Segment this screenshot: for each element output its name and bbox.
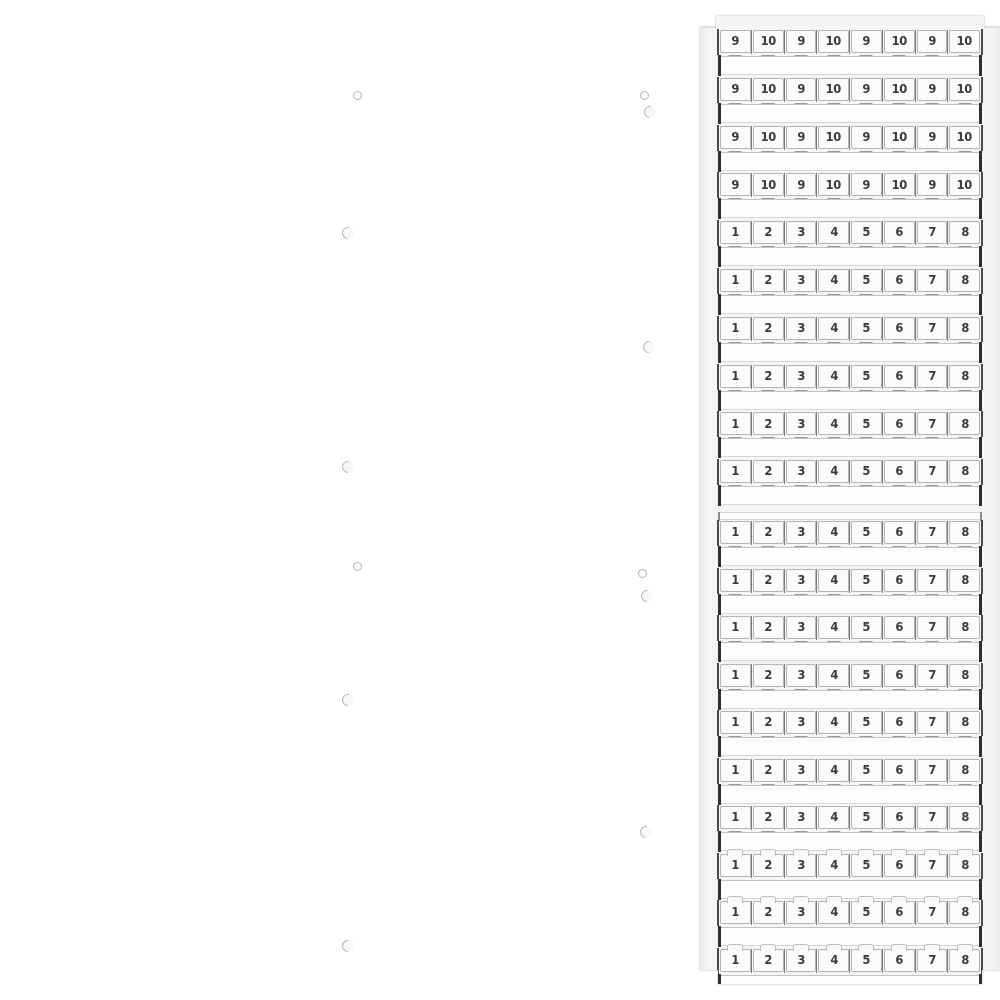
marker-tag: 1 <box>720 854 751 877</box>
marker-number: 2 <box>764 669 772 682</box>
marker-number: 2 <box>764 574 772 587</box>
marker-number: 5 <box>863 764 871 777</box>
marker-tag: 1 <box>720 412 751 435</box>
marker-tag: 8 <box>949 221 980 244</box>
marker-tag-strip: 12345678 <box>720 365 980 388</box>
marker-number: 7 <box>928 906 936 919</box>
marker-row: 910910910910 <box>700 173 1000 217</box>
marker-tag: 4 <box>818 854 849 877</box>
marker-number: 7 <box>928 669 936 682</box>
marker-tag-strip: 12345678 <box>720 759 980 782</box>
mount-hole <box>353 562 362 571</box>
marker-number: 4 <box>830 859 838 872</box>
marker-tag: 3 <box>786 412 817 435</box>
tag-notch <box>727 944 743 951</box>
marker-number: 9 <box>863 83 871 96</box>
mount-hole <box>640 91 649 100</box>
marker-number: 3 <box>797 906 805 919</box>
marker-number: 9 <box>732 35 740 48</box>
tag-notch <box>924 944 940 951</box>
marker-tag: 9 <box>851 78 882 101</box>
tag-notch <box>924 896 940 903</box>
marker-tag: 6 <box>884 269 915 292</box>
marker-tag: 7 <box>917 616 948 639</box>
marker-tag: 1 <box>720 317 751 340</box>
marker-tag-strip: 910910910910 <box>720 30 980 53</box>
marker-tag: 2 <box>753 664 784 687</box>
marker-number: 1 <box>732 574 740 587</box>
card-top-shoulder-left <box>700 27 716 28</box>
marker-tag-strip: 12345678 <box>720 711 980 734</box>
marker-tag: 7 <box>917 854 948 877</box>
marker-tag: 4 <box>818 317 849 340</box>
marker-tag-strip: 12345678 <box>720 854 980 877</box>
marker-number: 10 <box>761 131 776 144</box>
marker-number: 4 <box>830 811 838 824</box>
marker-tag-strip: 12345678 <box>720 806 980 829</box>
blank-marker-strip <box>718 247 982 266</box>
marker-tag: 8 <box>949 901 980 924</box>
marker-tag: 7 <box>917 901 948 924</box>
marker-tag: 8 <box>949 365 980 388</box>
blank-marker-strip <box>718 104 982 123</box>
marker-tag: 9 <box>720 126 751 149</box>
marker-number: 3 <box>797 465 805 478</box>
marker-tag: 1 <box>720 616 751 639</box>
marker-tag: 6 <box>884 759 915 782</box>
marker-row: 12345678 <box>700 221 1000 265</box>
marker-tag: 1 <box>720 221 751 244</box>
marker-tag-strip: 910910910910 <box>720 78 980 101</box>
marker-row: 12345678 <box>700 711 1000 755</box>
marker-row: 12345678 <box>700 569 1000 613</box>
marker-tag: 6 <box>884 949 915 972</box>
marker-tag-strip: 910910910910 <box>720 126 980 149</box>
marker-tag: 5 <box>851 806 882 829</box>
marker-number: 7 <box>928 465 936 478</box>
marker-row: 12345678 <box>700 412 1000 456</box>
marker-number: 2 <box>764 906 772 919</box>
marker-tag: 3 <box>786 854 817 877</box>
marker-tag: 8 <box>949 521 980 544</box>
blank-marker-strip <box>718 595 982 614</box>
marker-tag: 4 <box>818 901 849 924</box>
marker-number: 8 <box>961 274 969 287</box>
tag-notch <box>957 896 973 903</box>
marker-tag: 9 <box>720 173 751 196</box>
marker-tag: 7 <box>917 365 948 388</box>
marker-tag: 10 <box>949 78 980 101</box>
tag-notch <box>826 896 842 903</box>
marker-tag: 6 <box>884 854 915 877</box>
marker-number: 9 <box>797 83 805 96</box>
marker-tag: 2 <box>753 949 784 972</box>
marker-tag: 9 <box>851 30 882 53</box>
marker-tag: 10 <box>753 126 784 149</box>
marker-number: 4 <box>830 669 838 682</box>
marker-number: 4 <box>830 322 838 335</box>
marker-number: 3 <box>797 370 805 383</box>
marker-tag: 5 <box>851 460 882 483</box>
marker-number: 4 <box>830 574 838 587</box>
marker-tag: 6 <box>884 664 915 687</box>
marker-tag: 4 <box>818 759 849 782</box>
marker-tag: 4 <box>818 269 849 292</box>
marker-tag: 4 <box>818 221 849 244</box>
marker-tag: 3 <box>786 711 817 734</box>
marker-number: 9 <box>797 35 805 48</box>
marker-number: 10 <box>957 35 972 48</box>
tag-notch <box>858 849 874 856</box>
marker-number: 2 <box>764 274 772 287</box>
marker-tag: 9 <box>786 126 817 149</box>
marker-number: 4 <box>830 370 838 383</box>
mount-hole <box>638 569 647 578</box>
marker-number: 10 <box>892 35 907 48</box>
marker-number: 4 <box>830 526 838 539</box>
marker-tag: 4 <box>818 412 849 435</box>
marker-number: 9 <box>863 35 871 48</box>
marker-number: 8 <box>961 526 969 539</box>
blank-marker-strip <box>718 56 982 75</box>
tag-notch <box>957 944 973 951</box>
marker-tag: 6 <box>884 806 915 829</box>
marker-tag: 6 <box>884 221 915 244</box>
marker-row: 12345678 <box>700 365 1000 409</box>
marker-number: 7 <box>928 716 936 729</box>
marker-tag: 4 <box>818 664 849 687</box>
marker-tag: 10 <box>884 30 915 53</box>
marker-tag: 9 <box>917 30 948 53</box>
marker-number: 6 <box>895 954 903 967</box>
marker-tag: 3 <box>786 759 817 782</box>
marker-number: 9 <box>928 131 936 144</box>
marker-tag: 5 <box>851 317 882 340</box>
marker-number: 3 <box>797 274 805 287</box>
marker-tag: 7 <box>917 269 948 292</box>
marker-number: 5 <box>863 621 871 634</box>
marker-number: 5 <box>863 574 871 587</box>
marker-tag-strip: 12345678 <box>720 221 980 244</box>
marker-row: 12345678 <box>700 806 1000 850</box>
marker-tag: 3 <box>786 221 817 244</box>
marker-number: 8 <box>961 465 969 478</box>
marker-number: 5 <box>863 954 871 967</box>
marker-number: 3 <box>797 811 805 824</box>
marker-number: 5 <box>863 370 871 383</box>
marker-number: 6 <box>895 418 903 431</box>
marker-number: 2 <box>764 226 772 239</box>
marker-tag: 8 <box>949 269 980 292</box>
marker-number: 1 <box>732 716 740 729</box>
marker-tag: 9 <box>786 30 817 53</box>
marker-tag: 10 <box>818 30 849 53</box>
marker-tag: 1 <box>720 269 751 292</box>
marker-tag: 7 <box>917 806 948 829</box>
tag-notch <box>826 944 842 951</box>
marker-tag: 8 <box>949 949 980 972</box>
marker-tag: 9 <box>917 173 948 196</box>
marker-number: 2 <box>764 465 772 478</box>
marker-tag: 5 <box>851 616 882 639</box>
marker-number: 4 <box>830 274 838 287</box>
marker-number: 6 <box>895 226 903 239</box>
marker-tag: 9 <box>786 173 817 196</box>
marker-tag: 3 <box>786 806 817 829</box>
marker-row: 12345678 <box>700 521 1000 565</box>
marker-number: 1 <box>732 370 740 383</box>
marker-number: 6 <box>895 526 903 539</box>
marker-tag: 1 <box>720 711 751 734</box>
marker-number: 2 <box>764 954 772 967</box>
marker-number: 10 <box>826 35 841 48</box>
tag-notch <box>924 849 940 856</box>
marker-tag: 7 <box>917 569 948 592</box>
marker-number: 1 <box>732 526 740 539</box>
marker-tag: 3 <box>786 949 817 972</box>
marker-tag: 4 <box>818 616 849 639</box>
marker-tag: 1 <box>720 365 751 388</box>
marker-tag: 10 <box>884 126 915 149</box>
marker-number: 2 <box>764 811 772 824</box>
marker-number: 6 <box>895 764 903 777</box>
marker-tag: 9 <box>720 30 751 53</box>
marker-tag: 7 <box>917 759 948 782</box>
marker-number: 6 <box>895 274 903 287</box>
marker-tag: 2 <box>753 616 784 639</box>
marker-tag: 2 <box>753 412 784 435</box>
marker-tag: 9 <box>917 78 948 101</box>
blank-marker-strip <box>718 152 982 171</box>
marker-number: 8 <box>961 811 969 824</box>
marker-tag: 9 <box>786 78 817 101</box>
marker-tag: 5 <box>851 901 882 924</box>
blank-marker-strip <box>718 486 982 505</box>
marker-number: 8 <box>961 322 969 335</box>
blank-marker-strip <box>718 295 982 314</box>
marker-number: 3 <box>797 859 805 872</box>
marker-tag: 2 <box>753 759 784 782</box>
marker-row: 910910910910 <box>700 78 1000 122</box>
marker-number: 6 <box>895 811 903 824</box>
marker-tag: 8 <box>949 759 980 782</box>
marker-number: 4 <box>830 954 838 967</box>
marker-number: 7 <box>928 764 936 777</box>
marker-number: 2 <box>764 418 772 431</box>
marker-tag-strip: 910910910910 <box>720 173 980 196</box>
marker-number: 5 <box>863 418 871 431</box>
marker-tag: 2 <box>753 521 784 544</box>
marker-number: 5 <box>863 226 871 239</box>
marker-tag: 7 <box>917 949 948 972</box>
marker-number: 5 <box>863 716 871 729</box>
marker-tag: 5 <box>851 521 882 544</box>
marker-tag: 3 <box>786 569 817 592</box>
marker-tag: 4 <box>818 806 849 829</box>
marker-number: 4 <box>830 716 838 729</box>
blank-marker-strip <box>718 927 982 946</box>
marker-number: 3 <box>797 764 805 777</box>
marker-tag: 3 <box>786 616 817 639</box>
marker-number: 8 <box>961 954 969 967</box>
marker-tag: 5 <box>851 711 882 734</box>
marker-tag: 2 <box>753 460 784 483</box>
tag-notch <box>760 849 776 856</box>
marker-number: 7 <box>928 322 936 335</box>
marker-tag: 6 <box>884 901 915 924</box>
marker-number: 3 <box>797 954 805 967</box>
tag-notch <box>891 849 907 856</box>
marker-number: 4 <box>830 418 838 431</box>
marker-tag: 9 <box>851 126 882 149</box>
marker-tag: 4 <box>818 711 849 734</box>
marker-number: 1 <box>732 764 740 777</box>
marker-number: 6 <box>895 859 903 872</box>
marker-number: 2 <box>764 322 772 335</box>
marker-number: 10 <box>892 131 907 144</box>
marker-number: 6 <box>895 465 903 478</box>
marker-row: 12345678 <box>700 854 1000 898</box>
marker-number: 7 <box>928 370 936 383</box>
marker-tag-strip: 12345678 <box>720 901 980 924</box>
tag-notch <box>891 896 907 903</box>
section-top-edge <box>718 512 982 520</box>
marker-tag: 2 <box>753 854 784 877</box>
blank-marker-strip <box>718 343 982 362</box>
marker-tag: 8 <box>949 711 980 734</box>
marker-number: 9 <box>863 179 871 192</box>
marker-tag: 3 <box>786 460 817 483</box>
marker-tag: 6 <box>884 365 915 388</box>
marker-tag: 7 <box>917 664 948 687</box>
marker-row: 12345678 <box>700 269 1000 313</box>
marker-number: 8 <box>961 859 969 872</box>
marker-number: 3 <box>797 322 805 335</box>
marker-number: 7 <box>928 859 936 872</box>
marker-tag: 1 <box>720 460 751 483</box>
marker-tag-strip: 12345678 <box>720 317 980 340</box>
marker-number: 4 <box>830 465 838 478</box>
marker-tag: 1 <box>720 949 751 972</box>
marker-number: 4 <box>830 764 838 777</box>
marker-number: 1 <box>732 465 740 478</box>
marker-number: 1 <box>732 226 740 239</box>
marker-number: 10 <box>957 179 972 192</box>
marker-number: 7 <box>928 811 936 824</box>
tag-notch <box>793 944 809 951</box>
marker-tag: 7 <box>917 412 948 435</box>
marker-number: 9 <box>928 35 936 48</box>
tag-notch <box>858 944 874 951</box>
marker-tag-strip: 12345678 <box>720 949 980 972</box>
marker-tag-strip: 12345678 <box>720 569 980 592</box>
marker-number: 7 <box>928 418 936 431</box>
marker-number: 7 <box>928 954 936 967</box>
marker-number: 9 <box>732 131 740 144</box>
marker-tag: 2 <box>753 711 784 734</box>
marker-row: 12345678 <box>700 460 1000 504</box>
tag-notch <box>891 944 907 951</box>
marker-number: 4 <box>830 226 838 239</box>
marker-number: 7 <box>928 574 936 587</box>
blank-marker-strip <box>718 199 982 218</box>
marker-number: 2 <box>764 859 772 872</box>
tag-notch <box>826 849 842 856</box>
marker-tag: 8 <box>949 806 980 829</box>
marker-row: 910910910910 <box>700 126 1000 170</box>
marker-tag: 4 <box>818 949 849 972</box>
marker-tag: 3 <box>786 901 817 924</box>
marker-number: 7 <box>928 226 936 239</box>
marker-tag: 2 <box>753 806 784 829</box>
marker-tag: 7 <box>917 521 948 544</box>
marker-tag: 4 <box>818 365 849 388</box>
marker-tag: 5 <box>851 269 882 292</box>
marker-tag: 2 <box>753 317 784 340</box>
marker-tag: 9 <box>851 173 882 196</box>
blank-marker-strip <box>718 832 982 851</box>
marker-tag: 10 <box>818 126 849 149</box>
marker-tag: 1 <box>720 664 751 687</box>
marker-number: 3 <box>797 526 805 539</box>
marker-number: 9 <box>732 179 740 192</box>
blank-marker-strip <box>718 391 982 410</box>
blank-marker-strip <box>718 975 982 994</box>
marker-tag: 5 <box>851 569 882 592</box>
blank-marker-strip <box>718 642 982 661</box>
marker-tag: 10 <box>884 173 915 196</box>
marker-card: 9109109109109109109109109109109109109109… <box>700 16 1000 986</box>
marker-number: 9 <box>732 83 740 96</box>
marker-tag: 4 <box>818 569 849 592</box>
marker-number: 6 <box>895 669 903 682</box>
tag-notch <box>760 896 776 903</box>
marker-number: 8 <box>961 370 969 383</box>
marker-number: 10 <box>761 179 776 192</box>
marker-tag: 10 <box>753 30 784 53</box>
marker-number: 8 <box>961 669 969 682</box>
blank-marker-strip <box>718 547 982 566</box>
marker-row: 12345678 <box>700 664 1000 708</box>
marker-number: 5 <box>863 274 871 287</box>
tag-notch <box>760 944 776 951</box>
marker-number: 1 <box>732 621 740 634</box>
marker-number: 2 <box>764 764 772 777</box>
marker-tag: 3 <box>786 664 817 687</box>
marker-number: 6 <box>895 574 903 587</box>
marker-tag: 5 <box>851 365 882 388</box>
marker-number: 8 <box>961 906 969 919</box>
marker-tag: 1 <box>720 569 751 592</box>
marker-number: 1 <box>732 954 740 967</box>
marker-tag: 7 <box>917 317 948 340</box>
marker-tag: 6 <box>884 460 915 483</box>
marker-number: 3 <box>797 574 805 587</box>
tag-notch <box>793 896 809 903</box>
marker-number: 9 <box>797 131 805 144</box>
marker-tag: 8 <box>949 569 980 592</box>
card-section-lower-card: 1234567812345678123456781234567812345678… <box>700 504 1000 996</box>
marker-tag: 1 <box>720 521 751 544</box>
blank-marker-strip <box>718 737 982 756</box>
marker-number: 2 <box>764 621 772 634</box>
marker-tag-strip: 12345678 <box>720 664 980 687</box>
marker-number: 6 <box>895 906 903 919</box>
marker-tag: 5 <box>851 949 882 972</box>
marker-tag: 4 <box>818 460 849 483</box>
marker-row: 910910910910 <box>700 30 1000 74</box>
tag-notch <box>727 849 743 856</box>
